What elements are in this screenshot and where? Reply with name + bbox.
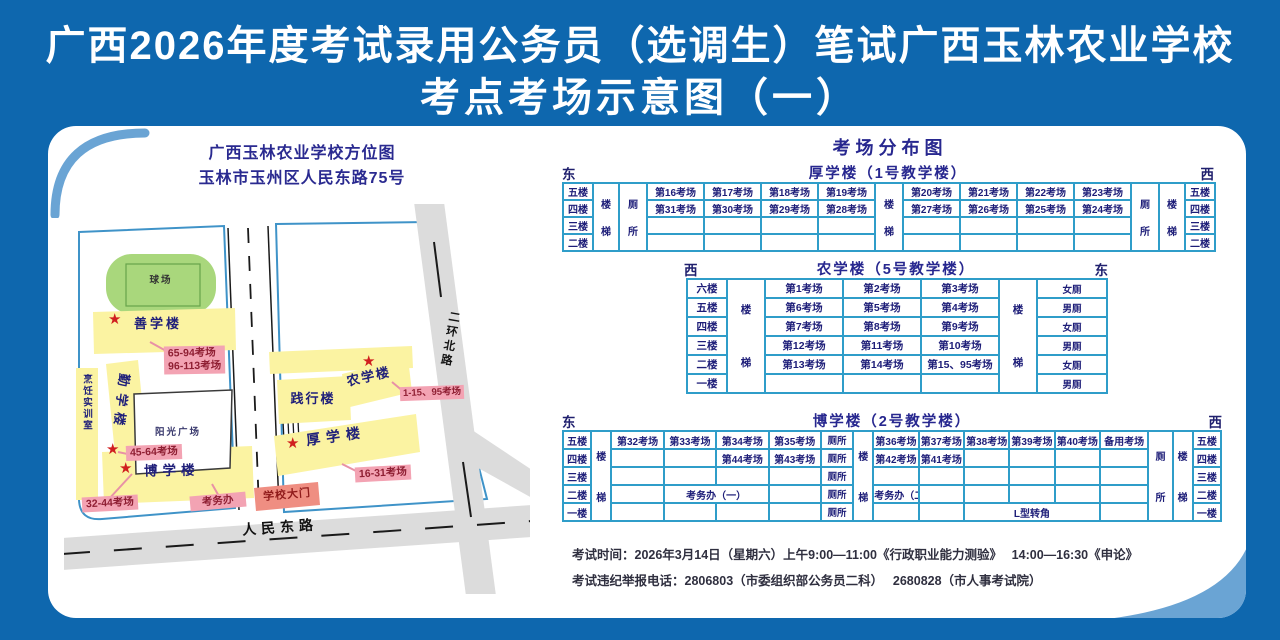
table1-title: 厚学楼（1号教学楼） (809, 162, 968, 183)
star-boxuelou-icon: ★ (119, 461, 132, 476)
empty-cell (1017, 234, 1074, 251)
empty-cell (664, 503, 716, 521)
grid-cell: 楼梯 (999, 279, 1037, 393)
grid-cell: 二楼 (687, 355, 727, 374)
grid-cell: 第11考场 (843, 336, 921, 355)
rooms-65-113-label: 65-94考场 96-113考场 (164, 345, 226, 374)
poster-title: 广西2026年度考试录用公务员（选调生）笔试广西玉林农业学校 考点考场示意图（一… (0, 22, 1280, 122)
empty-cell (873, 503, 918, 521)
map-heading-line1: 广西玉林农业学校方位图 (62, 142, 542, 167)
grid-cell: 厕所 (1131, 183, 1159, 251)
grid-cell: 第31考场 (647, 200, 704, 217)
grid-cell: 男厕 (1037, 374, 1107, 393)
empty-cell (843, 374, 921, 393)
grid-cell: 女厕 (1037, 355, 1107, 374)
empty-cell (611, 485, 663, 503)
table2-dir-left: 西 (684, 259, 698, 279)
grid-cell: 第42考场 (873, 449, 918, 467)
vertical-text: 楼梯 (854, 435, 872, 517)
grid-cell: 三楼 (563, 467, 591, 485)
grid-cell: 第43考场 (769, 449, 821, 467)
rotated-char: 学 (111, 391, 132, 407)
grid-cell: 第18考场 (761, 183, 818, 200)
grid-cell: 厕所 (821, 449, 853, 467)
grid-cell: 第24考场 (1074, 200, 1131, 217)
grid-cell: 第2考场 (843, 279, 921, 298)
grid-cell: 楼梯 (591, 431, 611, 521)
grid-cell: 五楼 (687, 298, 727, 317)
empty-cell (716, 467, 768, 485)
shanxuelou-label: 善学楼 (134, 313, 182, 332)
grid-cell: 第3考场 (921, 279, 999, 298)
grid-cell: 厕所 (619, 183, 647, 251)
grid-cell: 楼梯 (875, 183, 903, 251)
table3-dir-left: 东 (562, 411, 576, 431)
star-qinxuelou-icon: ★ (106, 442, 119, 457)
empty-cell (1017, 217, 1074, 234)
grid-cell: 三楼 (1185, 217, 1215, 234)
empty-cell (765, 374, 843, 393)
grid-cell: 一楼 (563, 503, 591, 521)
grid-cell: 楼梯 (727, 279, 765, 393)
grid-cell: L型转角 (964, 503, 1100, 521)
grid-cell: 一楼 (1193, 503, 1221, 521)
empty-cell (919, 503, 964, 521)
empty-cell (1074, 217, 1131, 234)
empty-cell (704, 234, 761, 251)
yangguang-plaza-label: 阳光广场 (128, 424, 228, 438)
empty-cell (1100, 485, 1148, 503)
table-boxuelou: 五楼楼梯第32考场第33考场第34考场第35考场厕所楼梯第36考场第37考场第3… (562, 430, 1222, 522)
rotated-char: 楼 (109, 411, 130, 427)
rotated-char: 勤 (113, 372, 134, 388)
empty-cell (1100, 503, 1148, 521)
grid-cell: 第20考场 (903, 183, 960, 200)
poster-title-line2: 考点考场示意图（一） (0, 74, 1280, 122)
table-boxuelou-body: 五楼楼梯第32考场第33考场第34考场第35考场厕所楼梯第36考场第37考场第3… (563, 431, 1221, 521)
jianxinglou-label: 践行楼 (276, 388, 350, 407)
exam-info: 考试时间：2026年3月14日（星期六）上午9:00—11:00《行政职业能力测… (572, 548, 1232, 589)
empty-cell (769, 467, 821, 485)
empty-cell (1009, 449, 1054, 467)
report-phone-line: 考试违纪举报电话：2806803（市委组织部公务员二科） 2680828（市人事… (572, 574, 1232, 589)
table2-header: 西 农学楼（5号教学楼） 东 (684, 258, 1108, 279)
star-shanxuelou-icon: ★ (108, 312, 121, 327)
empty-cell (769, 503, 821, 521)
grid-cell: 备用考场 (1100, 431, 1148, 449)
grid-cell: 第39考场 (1009, 431, 1054, 449)
empty-cell (769, 485, 821, 503)
vertical-text: 楼梯 (1174, 435, 1192, 517)
empty-cell (919, 467, 964, 485)
empty-cell (960, 217, 1017, 234)
empty-cell (818, 217, 875, 234)
grid-cell: 第37考场 (919, 431, 964, 449)
vertical-text: 楼梯 (1000, 283, 1036, 389)
empty-cell (1074, 234, 1131, 251)
table-row: 三楼厕所三楼 (563, 467, 1221, 485)
grid-cell: 第21考场 (960, 183, 1017, 200)
grid-cell: 第28考场 (818, 200, 875, 217)
empty-cell (761, 234, 818, 251)
table1-dir-left: 东 (562, 163, 576, 183)
distribution-section: 考场分布图 东 厚学楼（1号教学楼） 西 五楼楼梯厕所第16考场第17考场第18… (560, 126, 1240, 618)
rooms-96-113: 96-113考场 (168, 360, 221, 374)
grid-cell: 二楼 (1193, 485, 1221, 503)
empty-cell (664, 449, 716, 467)
grid-cell: 第38考场 (964, 431, 1009, 449)
grid-cell: 第44考场 (716, 449, 768, 467)
grid-cell: 四楼 (1193, 449, 1221, 467)
vertical-text: 楼梯 (876, 190, 902, 244)
table-houxuelou: 五楼楼梯厕所第16考场第17考场第18考场第19考场楼梯第20考场第21考场第2… (562, 182, 1216, 252)
grid-cell: 四楼 (687, 317, 727, 336)
grid-cell: 四楼 (563, 200, 593, 217)
empty-cell (964, 449, 1009, 467)
grid-cell: 第26考场 (960, 200, 1017, 217)
grid-cell: 厕所 (821, 485, 853, 503)
empty-cell (1100, 467, 1148, 485)
grid-cell: 第5考场 (843, 298, 921, 317)
table-nongxuelou-body: 六楼楼梯第1考场第2考场第3考场楼梯女厕五楼第6考场第5考场第4考场男厕四楼第7… (687, 279, 1107, 393)
empty-cell (1009, 467, 1054, 485)
empty-cell (611, 503, 663, 521)
empty-cell (903, 234, 960, 251)
empty-cell (873, 467, 918, 485)
grid-cell: 第23考场 (1074, 183, 1131, 200)
grid-cell: 四楼 (563, 449, 591, 467)
empty-cell (1009, 485, 1054, 503)
grid-cell: 女厕 (1037, 317, 1107, 336)
empty-cell (611, 467, 663, 485)
grid-cell: 五楼 (1185, 183, 1215, 200)
grid-cell: 第40考场 (1055, 431, 1100, 449)
grid-cell: 第32考场 (611, 431, 663, 449)
grid-cell: 第30考场 (704, 200, 761, 217)
grid-cell: 第16考场 (647, 183, 704, 200)
grid-cell: 第7考场 (765, 317, 843, 336)
grid-cell: 厕所 (821, 431, 853, 449)
campus-map: 球场 ★ 善学楼 65-94考场 96-113考场 烹饪实训室 勤学楼 ★ 45… (62, 202, 532, 596)
grid-cell: 三楼 (1193, 467, 1221, 485)
grid-cell: 厕所 (1148, 431, 1172, 521)
grid-cell: 第9考场 (921, 317, 999, 336)
table3-title: 博学楼（2号教学楼） (813, 410, 972, 431)
empty-cell (647, 234, 704, 251)
grid-cell: 二楼 (563, 485, 591, 503)
grid-cell: 厕所 (821, 467, 853, 485)
empty-cell (903, 217, 960, 234)
star-houxuelou-icon: ★ (286, 436, 299, 451)
grid-cell: 厕所 (821, 503, 853, 521)
empty-cell (647, 217, 704, 234)
grid-cell: 五楼 (563, 431, 591, 449)
table-row: 五楼楼梯第32考场第33考场第34考场第35考场厕所楼梯第36考场第37考场第3… (563, 431, 1221, 449)
map-heading-line2: 玉林市玉州区人民东路75号 (62, 167, 542, 192)
grid-cell: 第13考场 (765, 355, 843, 374)
empty-cell (1055, 467, 1100, 485)
vertical-text: 楼梯 (728, 283, 764, 389)
empty-cell (664, 467, 716, 485)
table-row: 六楼楼梯第1考场第2考场第3考场楼梯女厕 (687, 279, 1107, 298)
empty-cell (1100, 449, 1148, 467)
table-row: 五楼楼梯厕所第16考场第17考场第18考场第19考场楼梯第20考场第21考场第2… (563, 183, 1215, 200)
rooms-65-94: 65-94考场 (168, 347, 221, 361)
vertical-text: 厕所 (620, 190, 646, 244)
grid-cell: 考务办（一） (664, 485, 769, 503)
empty-cell (611, 449, 663, 467)
poster-title-line1: 广西2026年度考试录用公务员（选调生）笔试广西玉林农业学校 (0, 22, 1280, 70)
table3-header: 东 博学楼（2号教学楼） 西 (562, 410, 1222, 431)
grid-cell: 第6考场 (765, 298, 843, 317)
table1-header: 东 厚学楼（1号教学楼） 西 (562, 162, 1214, 183)
grid-cell: 男厕 (1037, 336, 1107, 355)
grid-cell: 一楼 (687, 374, 727, 393)
content-card: 广西玉林农业学校方位图 玉林市玉州区人民东路75号 (48, 126, 1246, 618)
grid-cell: 第33考场 (664, 431, 716, 449)
qinxuelou-label: 勤学楼 (112, 369, 131, 429)
table3-dir-right: 西 (1208, 411, 1222, 431)
table-row: 二楼考务办（一）厕所考务办（二）二楼 (563, 485, 1221, 503)
empty-cell (960, 234, 1017, 251)
grid-cell: 第12考场 (765, 336, 843, 355)
grid-cell: 第35考场 (769, 431, 821, 449)
table-nongxuelou: 六楼楼梯第1考场第2考场第3考场楼梯女厕五楼第6考场第5考场第4考场男厕四楼第7… (686, 278, 1108, 394)
grid-cell: 第17考场 (704, 183, 761, 200)
exam-time-line: 考试时间：2026年3月14日（星期六）上午9:00—11:00《行政职业能力测… (572, 548, 1232, 563)
empty-cell (964, 467, 1009, 485)
grid-cell: 第1考场 (765, 279, 843, 298)
distribution-title: 考场分布图 (560, 134, 1220, 160)
grid-cell: 第19考场 (818, 183, 875, 200)
grid-cell: 男厕 (1037, 298, 1107, 317)
grid-cell: 三楼 (687, 336, 727, 355)
table-row: 四楼第44考场第43考场厕所第42考场第41考场四楼 (563, 449, 1221, 467)
grid-cell: 第34考场 (716, 431, 768, 449)
grid-cell: 楼梯 (853, 431, 873, 521)
grid-cell: 第22考场 (1017, 183, 1074, 200)
rooms-16-31-label: 16-31考场 (355, 465, 412, 483)
map-heading: 广西玉林农业学校方位图 玉林市玉州区人民东路75号 (62, 142, 542, 192)
grid-cell: 第15、95考场 (921, 355, 999, 374)
empty-cell (761, 217, 818, 234)
empty-cell (921, 374, 999, 393)
grid-cell: 二楼 (563, 234, 593, 251)
grid-cell: 楼梯 (593, 183, 619, 251)
grid-cell: 第4考场 (921, 298, 999, 317)
empty-cell (1055, 449, 1100, 467)
vertical-text: 厕所 (1132, 190, 1158, 244)
grid-cell: 第8考场 (843, 317, 921, 336)
empty-cell (964, 485, 1009, 503)
empty-cell (919, 485, 964, 503)
grid-cell: 考务办（二） (873, 485, 918, 503)
grid-cell: 第25考场 (1017, 200, 1074, 217)
grid-cell: 第36考场 (873, 431, 918, 449)
vertical-text: 楼梯 (592, 435, 610, 517)
vertical-text: 楼梯 (594, 190, 618, 244)
table-row: 一楼厕所L型转角一楼 (563, 503, 1221, 521)
vertical-text: 楼梯 (1160, 190, 1184, 244)
empty-cell (1055, 485, 1100, 503)
sports-field-label: 球场 (106, 272, 216, 286)
grid-cell: 四楼 (1185, 200, 1215, 217)
grid-cell: 第29考场 (761, 200, 818, 217)
table2-title: 农学楼（5号教学楼） (817, 258, 976, 279)
empty-cell (818, 234, 875, 251)
grid-cell: 二楼 (1185, 234, 1215, 251)
grid-cell: 五楼 (563, 183, 593, 200)
grid-cell: 六楼 (687, 279, 727, 298)
grid-cell: 三楼 (563, 217, 593, 234)
grid-cell: 第10考场 (921, 336, 999, 355)
grid-cell: 第41考场 (919, 449, 964, 467)
empty-cell (704, 217, 761, 234)
table1-dir-right: 西 (1200, 163, 1214, 183)
pengren-label: 烹饪实训室 (79, 374, 93, 498)
table-houxuelou-body: 五楼楼梯厕所第16考场第17考场第18考场第19考场楼梯第20考场第21考场第2… (563, 183, 1215, 251)
grid-cell: 女厕 (1037, 279, 1107, 298)
vertical-text: 厕所 (1149, 435, 1171, 517)
grid-cell: 楼梯 (1159, 183, 1185, 251)
rooms-32-44-label: 32-44考场 (82, 495, 139, 513)
grid-cell: 第14考场 (843, 355, 921, 374)
table2-dir-right: 东 (1094, 259, 1108, 279)
empty-cell (716, 503, 768, 521)
grid-cell: 五楼 (1193, 431, 1221, 449)
grid-cell: 第27考场 (903, 200, 960, 217)
grid-cell: 楼梯 (1173, 431, 1193, 521)
boxuelou-label: 博学楼 (144, 459, 200, 480)
